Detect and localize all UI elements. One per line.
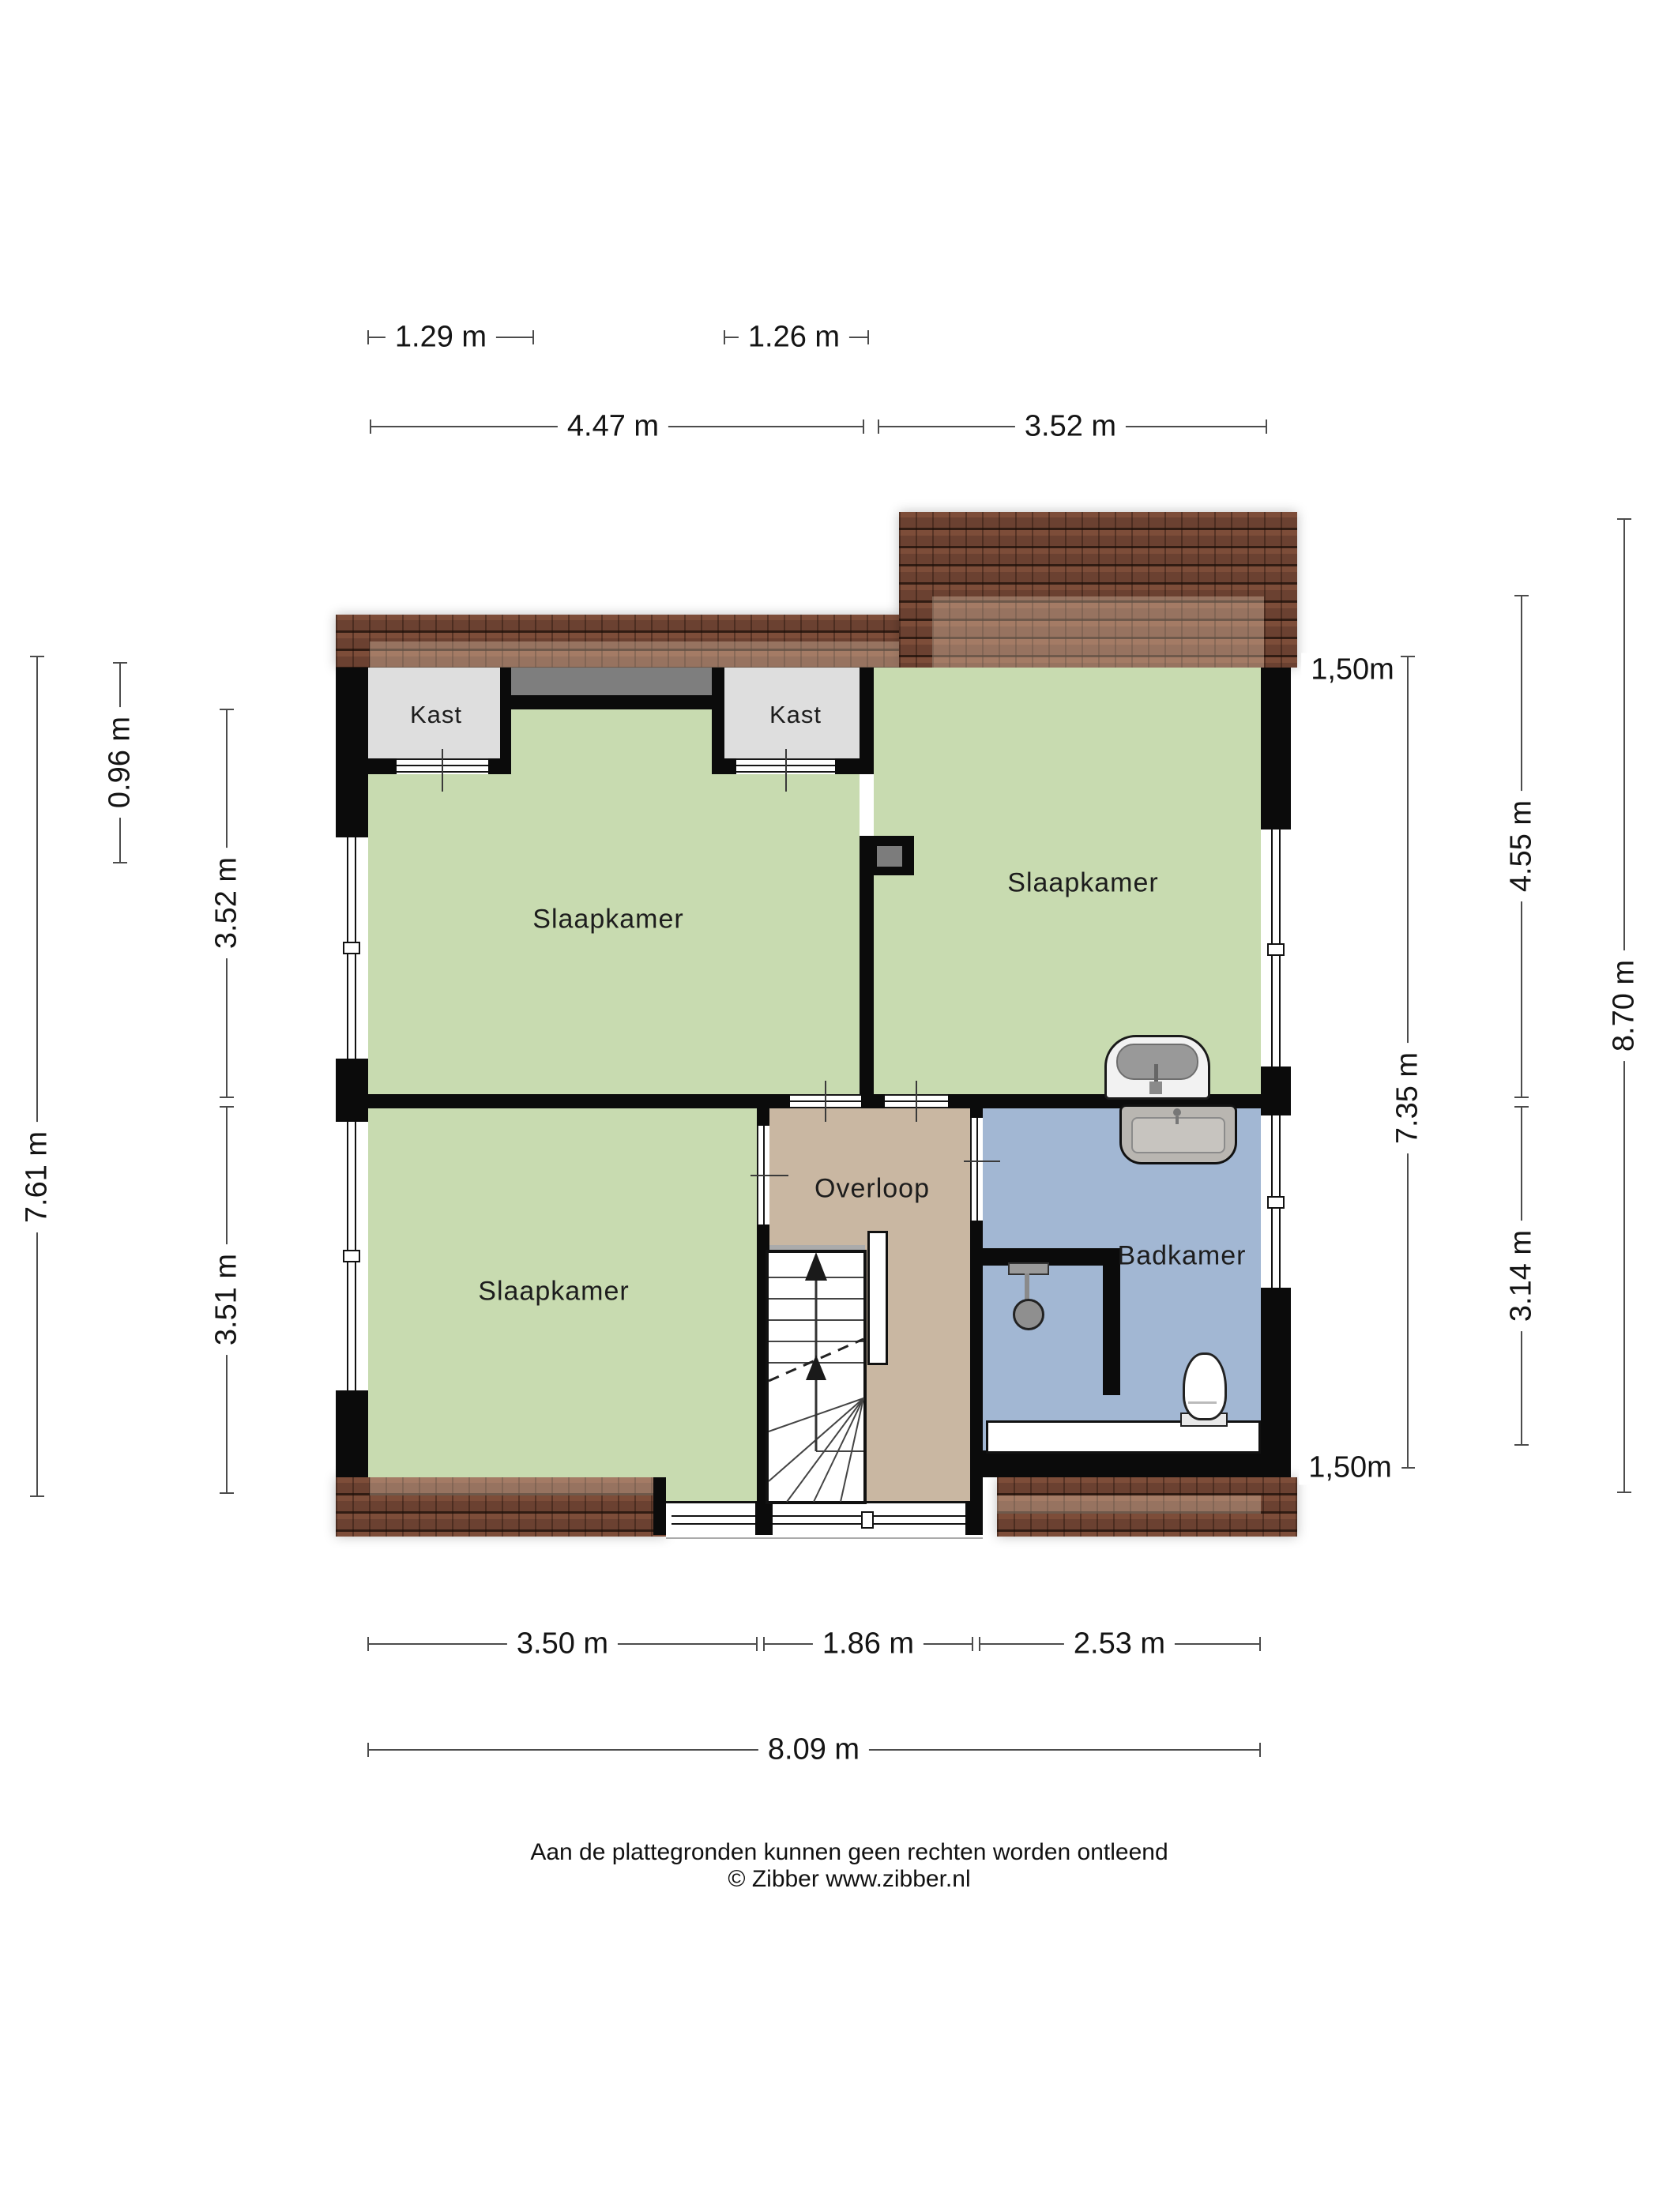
- door-bedroomtr-landing-tick: [916, 1081, 917, 1122]
- window-right-bathroom-mullion: [1267, 1196, 1285, 1209]
- roof-dormer-shade-bottom-left: [370, 1477, 653, 1495]
- dim-label-bottom-3: 2.53 m: [1064, 1627, 1175, 1661]
- door-bathroom-swing-tick: [964, 1161, 1000, 1162]
- wall-bedrooms-divider-lower: [860, 875, 874, 1094]
- chimney-icon: [877, 846, 902, 867]
- dim-label-left-lower: 3.51 m: [210, 1244, 244, 1355]
- roof-dormer-shade-bottom-right: [997, 1495, 1261, 1514]
- bedroom-bottom-left-nook: [666, 1477, 757, 1501]
- door-bedroombl-swing-tick: [750, 1175, 788, 1176]
- dim-label-left-roof: 0.96 m: [103, 707, 137, 818]
- wall-closet2-front-right: [835, 758, 860, 774]
- dim-label-top-inner-2: 1.26 m: [739, 321, 849, 355]
- room-label-bedroom-top-right: Slaapkamer: [1007, 868, 1158, 899]
- room-label-bedroom-top-left: Slaapkamer: [532, 905, 683, 935]
- dim-label-left-total: 7.61 m: [21, 1122, 55, 1232]
- wall-right-outer: [1261, 668, 1291, 1477]
- window-right-upper-mullion: [1267, 943, 1285, 956]
- window-bottom-nook-glazing: [671, 1515, 755, 1525]
- room-label-closet2: Kast: [769, 701, 822, 729]
- dim-label-right-knee-bottom: 1,50m: [1299, 1451, 1401, 1485]
- door-closet1-swing-tick: [442, 749, 443, 792]
- footer-copyright: © Zibber www.zibber.nl: [728, 1866, 970, 1893]
- wall-mid-horizontal-a: [368, 1094, 790, 1108]
- wall-closet2-left: [712, 668, 724, 774]
- dim-label-bottom-1: 3.50 m: [507, 1627, 618, 1661]
- room-label-bedroom-bottom-left: Slaapkamer: [478, 1277, 629, 1307]
- dim-label-bottom-2: 1.86 m: [813, 1627, 924, 1661]
- stair-balustrade: [867, 1231, 888, 1365]
- wall-recess-bottom: [511, 695, 712, 709]
- window-left-lower-mullion: [343, 1250, 360, 1262]
- dim-label-right-mid: 7.35 m: [1391, 1043, 1425, 1153]
- window-left-upper-mullion: [343, 942, 360, 954]
- wall-bottom-cap-left: [653, 1477, 666, 1535]
- wall-bathroom-south: [983, 1450, 1291, 1477]
- dim-label-top-inner-1: 1.29 m: [386, 321, 496, 355]
- roof-recess: [511, 668, 712, 695]
- toilet-icon: [1180, 1352, 1228, 1425]
- vanity-sink-icon: [1119, 1104, 1237, 1164]
- wall-closet1-front-left: [368, 758, 397, 774]
- door-closet2-swing-tick: [785, 749, 787, 792]
- dim-label-right-lower: 3.14 m: [1505, 1221, 1539, 1331]
- wall-bedrooms-divider-upper: [860, 668, 874, 774]
- room-label-closet1: Kast: [410, 701, 462, 729]
- door-bedroomtl-landing-tick: [825, 1081, 826, 1122]
- shower-wall-right: [1103, 1266, 1120, 1395]
- dim-label-bottom-total: 8.09 m: [758, 1733, 869, 1767]
- dim-label-top-2: 3.52 m: [1015, 410, 1126, 444]
- dim-label-right-upper: 4.55 m: [1505, 791, 1539, 901]
- dim-line-left-total: [36, 656, 38, 1497]
- dim-label-right-total: 8.70 m: [1608, 950, 1642, 1061]
- wall-closet1-front-right: [488, 758, 511, 774]
- wash-basin-icon: [1104, 1035, 1210, 1100]
- room-label-landing: Overloop: [814, 1174, 930, 1205]
- roof-dormer-shade-top-right: [932, 596, 1264, 668]
- floor-plan: Slaapkamer Slaapkamer Slaapkamer Kast Ka…: [0, 0, 1659, 2212]
- shower-head-icon: [1005, 1259, 1049, 1326]
- room-label-bathroom: Badkamer: [1118, 1241, 1247, 1272]
- footer-disclaimer: Aan de plattegronden kunnen geen rechten…: [530, 1839, 1168, 1866]
- roof-dormer-shade-top: [370, 641, 899, 668]
- dim-label-right-knee-top: 1,50m: [1301, 653, 1404, 687]
- wall-bottom-cap-right: [965, 1501, 983, 1535]
- dim-label-top-1: 4.47 m: [558, 410, 668, 444]
- wall-closet2-front-left: [724, 758, 736, 774]
- shower-wall-top: [983, 1248, 1120, 1266]
- wall-mid-horizontal-b: [861, 1094, 885, 1108]
- door-bathroom-sill: [970, 1118, 983, 1221]
- dim-label-left-upper: 3.52 m: [210, 848, 244, 958]
